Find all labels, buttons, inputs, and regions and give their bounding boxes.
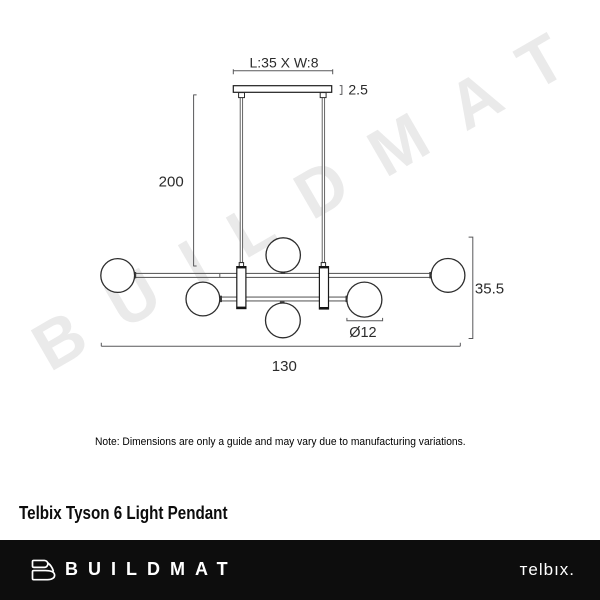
- svg-text:35.5: 35.5: [475, 280, 504, 297]
- svg-text:130: 130: [272, 358, 297, 375]
- svg-text:L:35 X W:8: L:35 X W:8: [249, 55, 318, 71]
- svg-text:Ø12: Ø12: [349, 325, 376, 341]
- svg-text:200: 200: [159, 174, 184, 191]
- svg-text:2.5: 2.5: [348, 82, 368, 98]
